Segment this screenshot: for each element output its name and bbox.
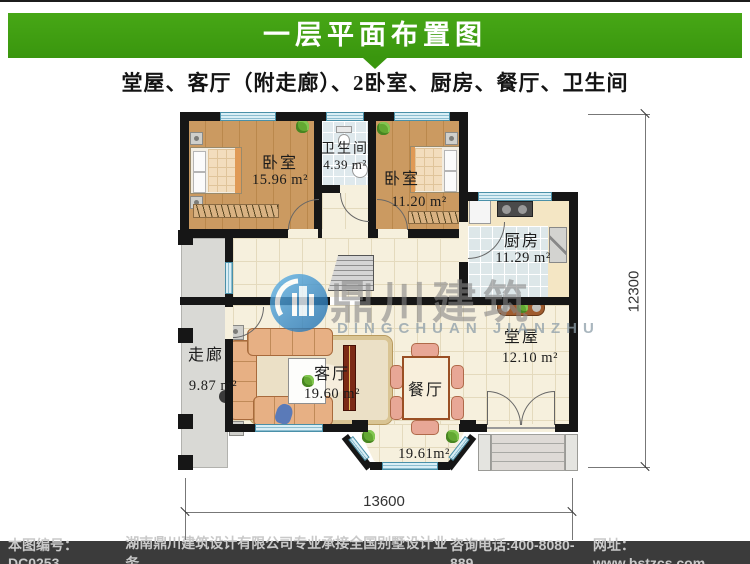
drawing-number: 本图编号：DC0253 (8, 535, 125, 564)
wall (459, 297, 578, 305)
column (178, 455, 193, 470)
kitchen-sink (469, 200, 491, 224)
door-opening (288, 229, 318, 238)
door-opening (225, 307, 233, 339)
nightstand (445, 132, 458, 145)
kitchen-area: 11.29 m² (488, 250, 558, 267)
dimension-width: 13600 (344, 493, 424, 510)
window (225, 262, 233, 294)
blanket (208, 149, 235, 192)
threshold (487, 427, 555, 429)
hall-name: 堂屋 (494, 323, 550, 347)
bedroom-right-name: 卧室 (378, 165, 426, 189)
living-name: 客厅 (306, 360, 358, 384)
wall-corner (460, 420, 476, 432)
nightstand (190, 132, 203, 145)
toilet-tank (336, 126, 352, 133)
plant (377, 122, 390, 135)
wall (360, 297, 468, 305)
dining-area: 19.61m² (386, 446, 462, 463)
burner (518, 205, 527, 214)
door-opening (322, 229, 368, 238)
window (478, 192, 552, 201)
bay-window (382, 462, 438, 470)
column (178, 414, 193, 429)
bathroom-name: 卫生间 (315, 138, 375, 158)
plant (446, 430, 459, 443)
bed (190, 147, 242, 194)
company-slogan: 湖南鼎川建筑设计有限公司专业承接全国别墅设计业务 (125, 533, 450, 564)
window (255, 424, 323, 432)
page-title: 一层平面布置图 (8, 13, 742, 58)
bedroom-right-area: 11.20 m² (384, 194, 454, 211)
website-url: 网址：www.bstzcs.com (593, 535, 742, 564)
wardrobe (408, 211, 460, 224)
footer-bar: 本图编号：DC0253 湖南鼎川建筑设计有限公司专业承接全国别墅设计业务 咨询电… (0, 541, 750, 564)
column (178, 230, 193, 245)
burner (502, 205, 511, 214)
dining-table: 餐厅 (402, 356, 450, 420)
extension-line (185, 478, 186, 540)
porch-rail (565, 434, 578, 471)
extension-line (588, 114, 650, 115)
hall-area: 12.10 m² (490, 350, 570, 367)
wall (368, 117, 376, 229)
porch-steps (491, 434, 565, 471)
extension-line (588, 467, 650, 468)
bedroom-left-name: 卧室 (245, 149, 315, 173)
wall (180, 297, 330, 305)
stove (497, 201, 533, 217)
window (326, 112, 364, 121)
top-border (0, 0, 750, 2)
corridor-area: 9.87 m² (180, 378, 246, 395)
wall (569, 297, 578, 432)
bedroom-left-area: 15.96 m² (238, 172, 322, 189)
dimension-height: 12300 (626, 252, 643, 332)
extension-line (572, 478, 573, 540)
wall (180, 112, 189, 238)
plant (296, 120, 309, 133)
dining-room-name: 餐厅 (408, 376, 444, 400)
window (220, 112, 276, 121)
floor-plan-page: 一层平面布置图 堂屋、客厅（附走廊）、2卧室、厨房、餐厅、卫生间 (0, 0, 750, 564)
wardrobe (193, 204, 279, 218)
pillow (193, 172, 206, 193)
kitchen-name: 厨房 (498, 227, 546, 251)
pillow (193, 151, 206, 172)
pillow (444, 171, 457, 192)
dining-chair (451, 396, 464, 420)
window (394, 112, 450, 121)
sofa (247, 328, 333, 356)
door-opening (340, 185, 368, 193)
wall-corner (352, 420, 368, 432)
bathroom-area: 4.39 m² (317, 157, 373, 173)
wall (569, 192, 578, 305)
corridor-name: 走廊 (184, 341, 228, 365)
porch-rail (478, 434, 491, 471)
dimension-line-bottom (185, 512, 573, 513)
room-summary: 堂屋、客厅（附走廊）、2卧室、厨房、餐厅、卫生间 (0, 67, 750, 97)
door-opening (378, 229, 408, 238)
living-area: 19.60 m² (292, 386, 372, 403)
dimension-line-right (645, 114, 646, 468)
dining-chair (411, 420, 439, 435)
door-opening (459, 222, 468, 262)
dining-chair (451, 365, 464, 389)
pillow (444, 150, 457, 171)
